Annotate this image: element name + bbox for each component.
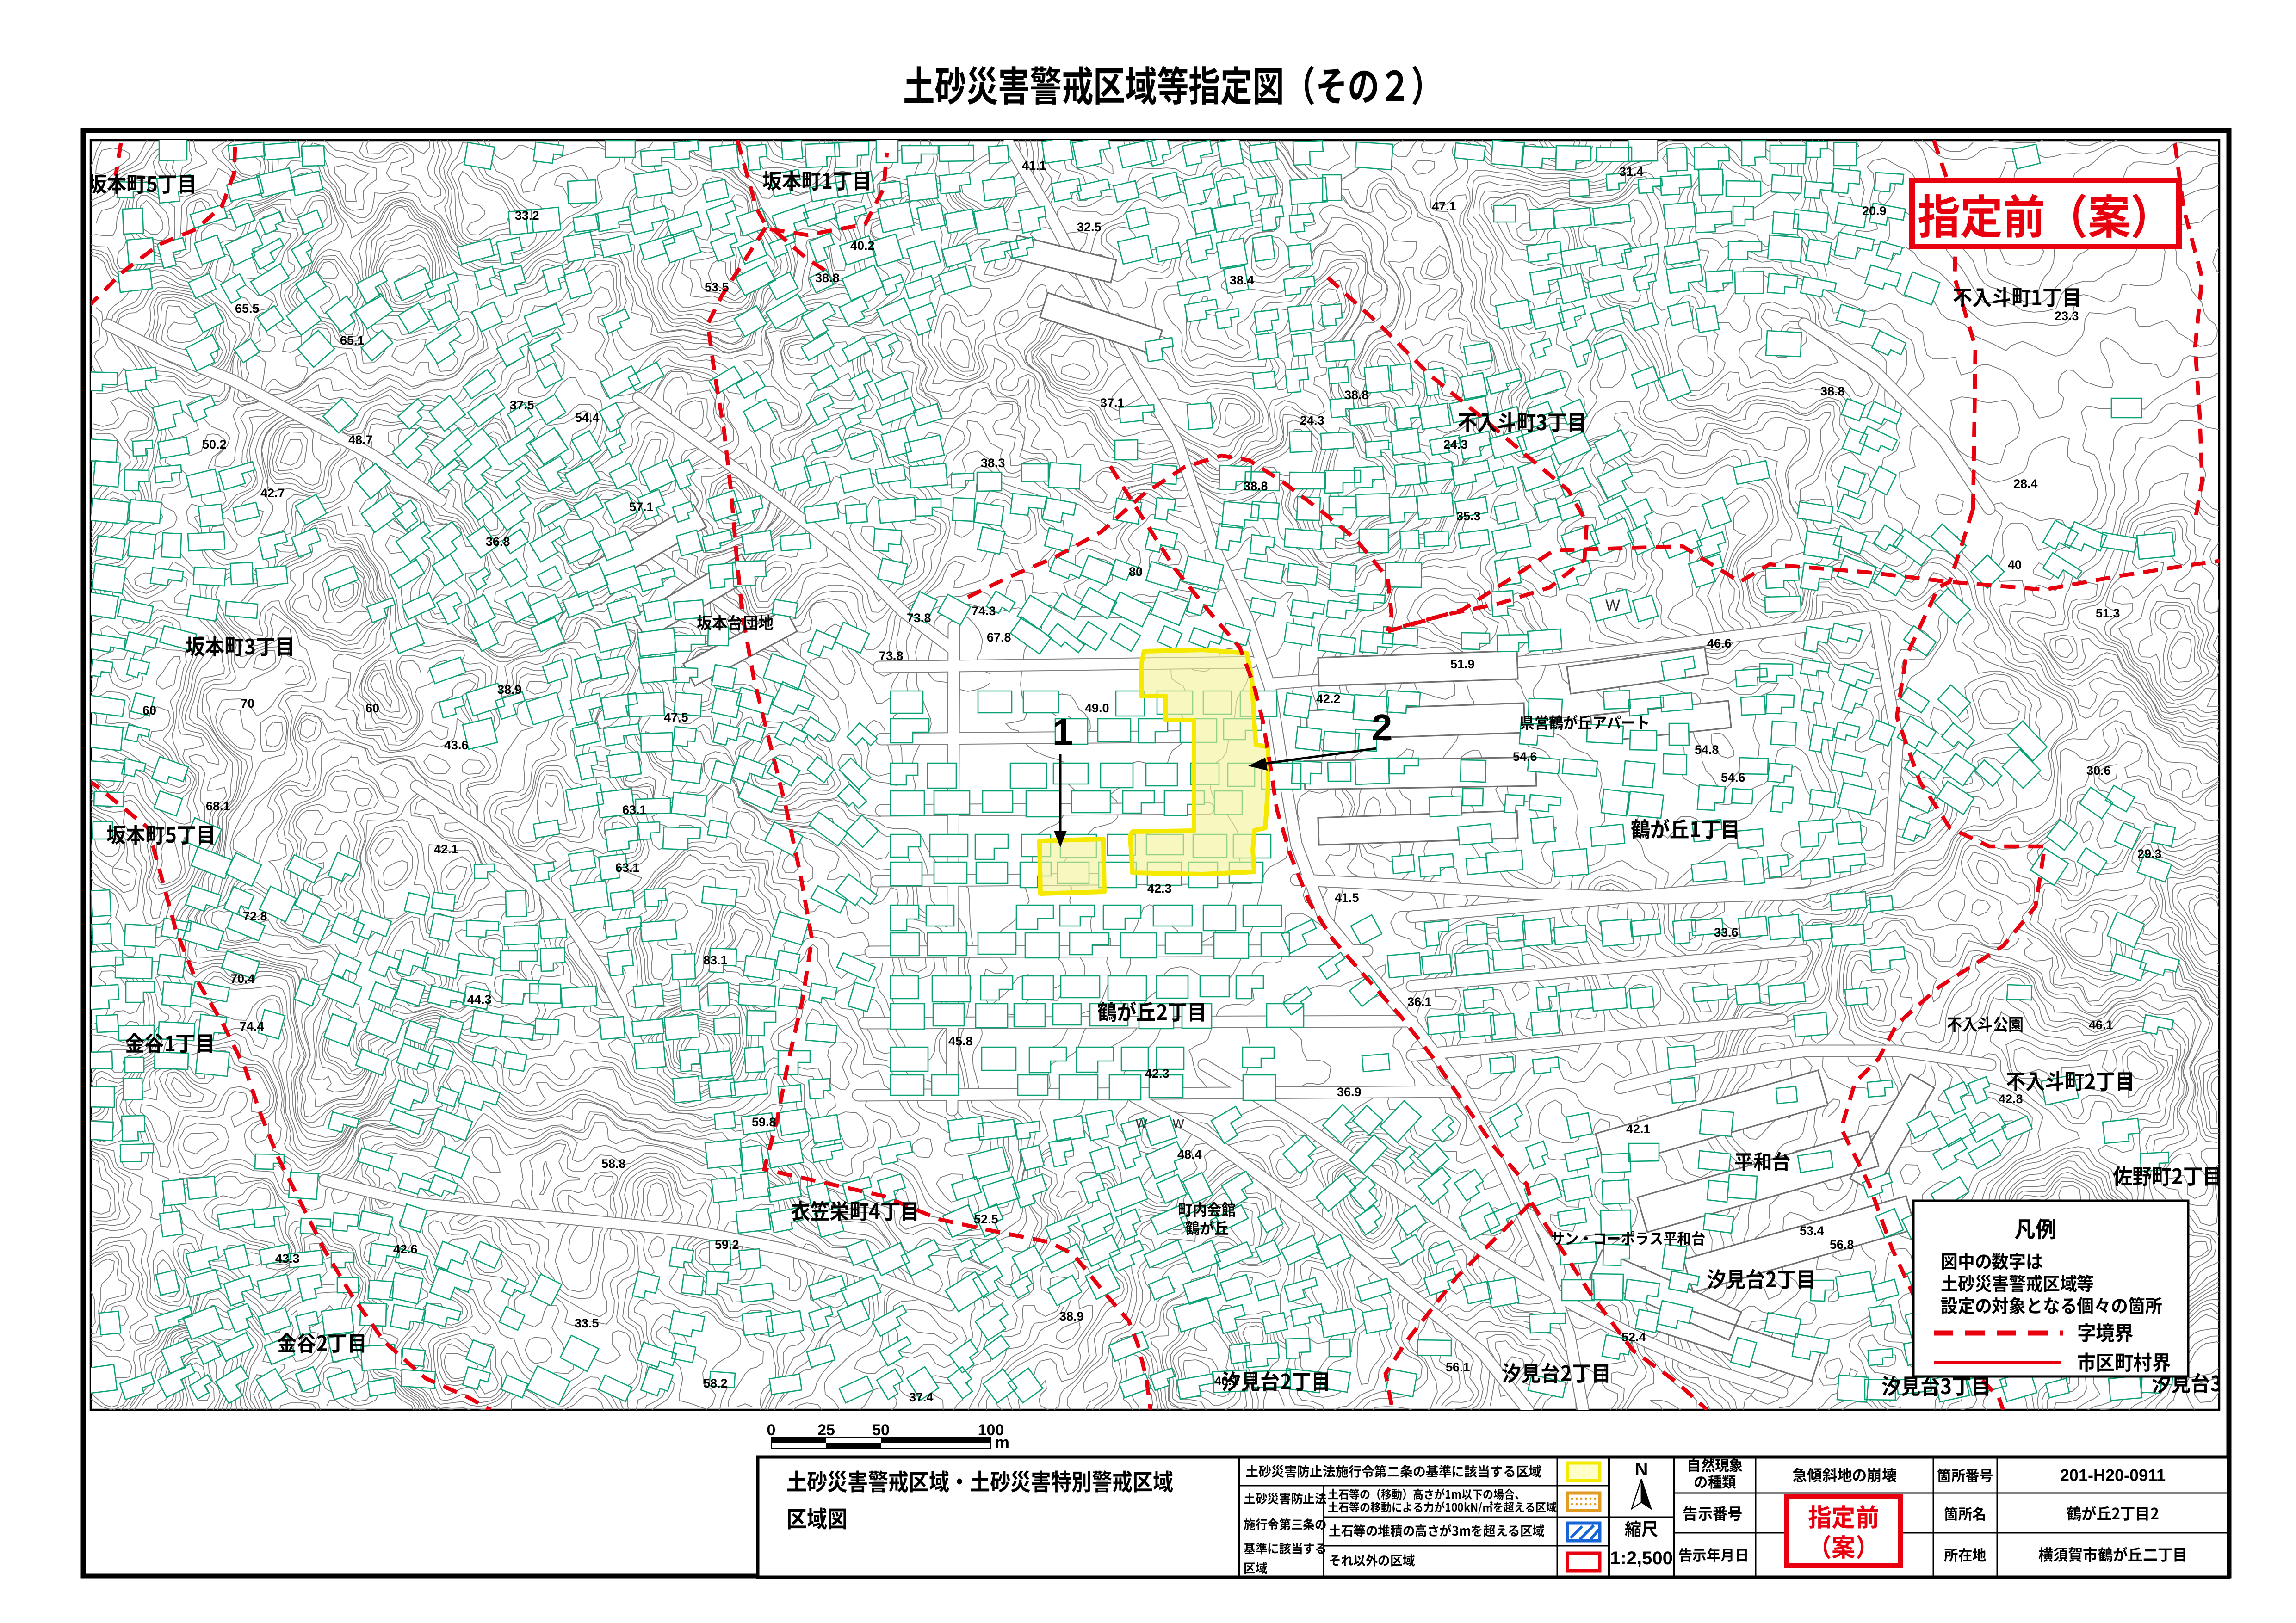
svg-text:80: 80 <box>1129 565 1143 579</box>
svg-text:42.1: 42.1 <box>434 842 458 856</box>
svg-text:67.8: 67.8 <box>987 630 1011 644</box>
svg-text:54.8: 54.8 <box>1695 743 1719 757</box>
svg-text:28.4: 28.4 <box>2013 477 2038 491</box>
svg-text:54.4: 54.4 <box>575 411 600 425</box>
svg-text:60: 60 <box>142 704 156 717</box>
svg-text:42.6: 42.6 <box>393 1242 418 1256</box>
svg-text:65.5: 65.5 <box>235 302 260 315</box>
svg-text:53.4: 53.4 <box>1800 1224 1824 1238</box>
svg-text:57.1: 57.1 <box>629 500 654 514</box>
svg-text:38.8: 38.8 <box>815 271 840 285</box>
svg-text:w: w <box>1172 1114 1184 1131</box>
svg-text:50: 50 <box>872 1421 890 1439</box>
svg-text:36.8: 36.8 <box>486 535 510 549</box>
svg-text:49.0: 49.0 <box>1085 701 1109 715</box>
svg-text:38.8: 38.8 <box>1820 384 1845 398</box>
svg-text:38.9: 38.9 <box>497 683 522 697</box>
svg-text:35.3: 35.3 <box>1456 509 1481 523</box>
svg-text:24.3: 24.3 <box>1443 438 1468 451</box>
svg-text:29.3: 29.3 <box>2137 847 2162 861</box>
svg-text:44.3: 44.3 <box>467 993 492 1006</box>
svg-text:32.5: 32.5 <box>1077 220 1102 234</box>
svg-text:42.3: 42.3 <box>1145 1067 1170 1080</box>
svg-text:38.4: 38.4 <box>1230 273 1254 287</box>
svg-text:63.1: 63.1 <box>622 803 647 817</box>
svg-text:24.3: 24.3 <box>1300 413 1324 427</box>
svg-text:1:2,500: 1:2,500 <box>1610 1548 1673 1568</box>
svg-text:52.4: 52.4 <box>1621 1330 1646 1344</box>
svg-text:45.8: 45.8 <box>948 1034 973 1048</box>
svg-text:59.2: 59.2 <box>715 1238 739 1252</box>
svg-text:N: N <box>1635 1459 1648 1480</box>
svg-text:54.6: 54.6 <box>1513 750 1537 764</box>
svg-text:30.6: 30.6 <box>2086 764 2111 778</box>
svg-text:37.1: 37.1 <box>1100 396 1125 410</box>
svg-text:37.5: 37.5 <box>510 398 534 412</box>
svg-text:70.4: 70.4 <box>230 972 255 986</box>
svg-text:1: 1 <box>1052 711 1073 753</box>
svg-text:48.7: 48.7 <box>348 433 373 447</box>
svg-text:43.3: 43.3 <box>275 1252 300 1265</box>
svg-text:58.2: 58.2 <box>703 1376 728 1390</box>
svg-text:25: 25 <box>817 1421 835 1439</box>
svg-text:56.1: 56.1 <box>1446 1360 1470 1374</box>
svg-text:46.1: 46.1 <box>2089 1018 2113 1032</box>
svg-text:38.3: 38.3 <box>981 456 1005 470</box>
svg-text:33.2: 33.2 <box>515 209 539 222</box>
svg-text:38.8: 38.8 <box>1344 388 1369 402</box>
svg-text:74.4: 74.4 <box>240 1019 264 1033</box>
svg-text:46.6: 46.6 <box>1707 636 1732 650</box>
svg-text:72.8: 72.8 <box>243 909 267 923</box>
svg-text:73.8: 73.8 <box>879 649 904 663</box>
svg-text:W: W <box>1605 597 1620 614</box>
svg-text:40.2: 40.2 <box>850 239 875 253</box>
svg-text:41.1: 41.1 <box>1022 159 1046 173</box>
svg-text:43.6: 43.6 <box>444 738 469 752</box>
svg-text:51.3: 51.3 <box>2096 606 2120 620</box>
svg-text:74.3: 74.3 <box>972 604 996 618</box>
svg-text:58.8: 58.8 <box>601 1157 626 1171</box>
svg-text:70: 70 <box>241 697 254 710</box>
svg-text:56.8: 56.8 <box>1830 1238 1854 1252</box>
svg-text:60: 60 <box>365 701 379 715</box>
svg-text:42.1: 42.1 <box>1626 1122 1651 1136</box>
svg-text:33.6: 33.6 <box>1714 926 1739 939</box>
svg-text:m: m <box>995 1433 1009 1452</box>
svg-text:54.6: 54.6 <box>1721 771 1745 784</box>
svg-text:0: 0 <box>767 1421 776 1439</box>
svg-text:68.1: 68.1 <box>206 799 230 813</box>
svg-text:38.8: 38.8 <box>1244 479 1268 493</box>
svg-text:40: 40 <box>2008 558 2022 572</box>
svg-text:42.8: 42.8 <box>1999 1092 2023 1106</box>
svg-text:65.1: 65.1 <box>340 333 365 347</box>
svg-text:48.4: 48.4 <box>1177 1148 1202 1161</box>
svg-text:36.1: 36.1 <box>1407 995 1432 1009</box>
svg-text:52.5: 52.5 <box>974 1212 998 1226</box>
svg-text:63.1: 63.1 <box>615 861 640 875</box>
svg-text:51.9: 51.9 <box>1450 657 1475 671</box>
svg-text:36.9: 36.9 <box>1337 1085 1362 1099</box>
svg-text:31.4: 31.4 <box>1619 165 1644 179</box>
svg-text:47.5: 47.5 <box>664 710 688 724</box>
svg-text:41.5: 41.5 <box>1335 891 1359 905</box>
svg-text:59.8: 59.8 <box>752 1115 776 1129</box>
svg-text:201-H20-0911: 201-H20-0911 <box>2060 1466 2166 1485</box>
svg-text:20.9: 20.9 <box>1862 204 1887 218</box>
svg-text:38.9: 38.9 <box>1059 1309 1084 1323</box>
svg-text:23.3: 23.3 <box>2055 309 2079 323</box>
svg-text:42.7: 42.7 <box>260 486 285 500</box>
svg-text:42.2: 42.2 <box>1316 692 1341 706</box>
svg-text:37.4: 37.4 <box>909 1390 934 1404</box>
svg-text:50.2: 50.2 <box>202 438 227 451</box>
svg-text:33.5: 33.5 <box>575 1316 599 1330</box>
svg-text:2: 2 <box>1372 707 1392 748</box>
svg-text:73.8: 73.8 <box>907 611 931 625</box>
svg-text:42.3: 42.3 <box>1147 882 1172 895</box>
svg-text:83.1: 83.1 <box>703 953 728 967</box>
svg-text:40.1: 40.1 <box>1214 1374 1239 1388</box>
svg-text:47.1: 47.1 <box>1432 199 1456 213</box>
svg-text:w: w <box>1135 1114 1147 1131</box>
svg-text:53.5: 53.5 <box>705 280 729 294</box>
